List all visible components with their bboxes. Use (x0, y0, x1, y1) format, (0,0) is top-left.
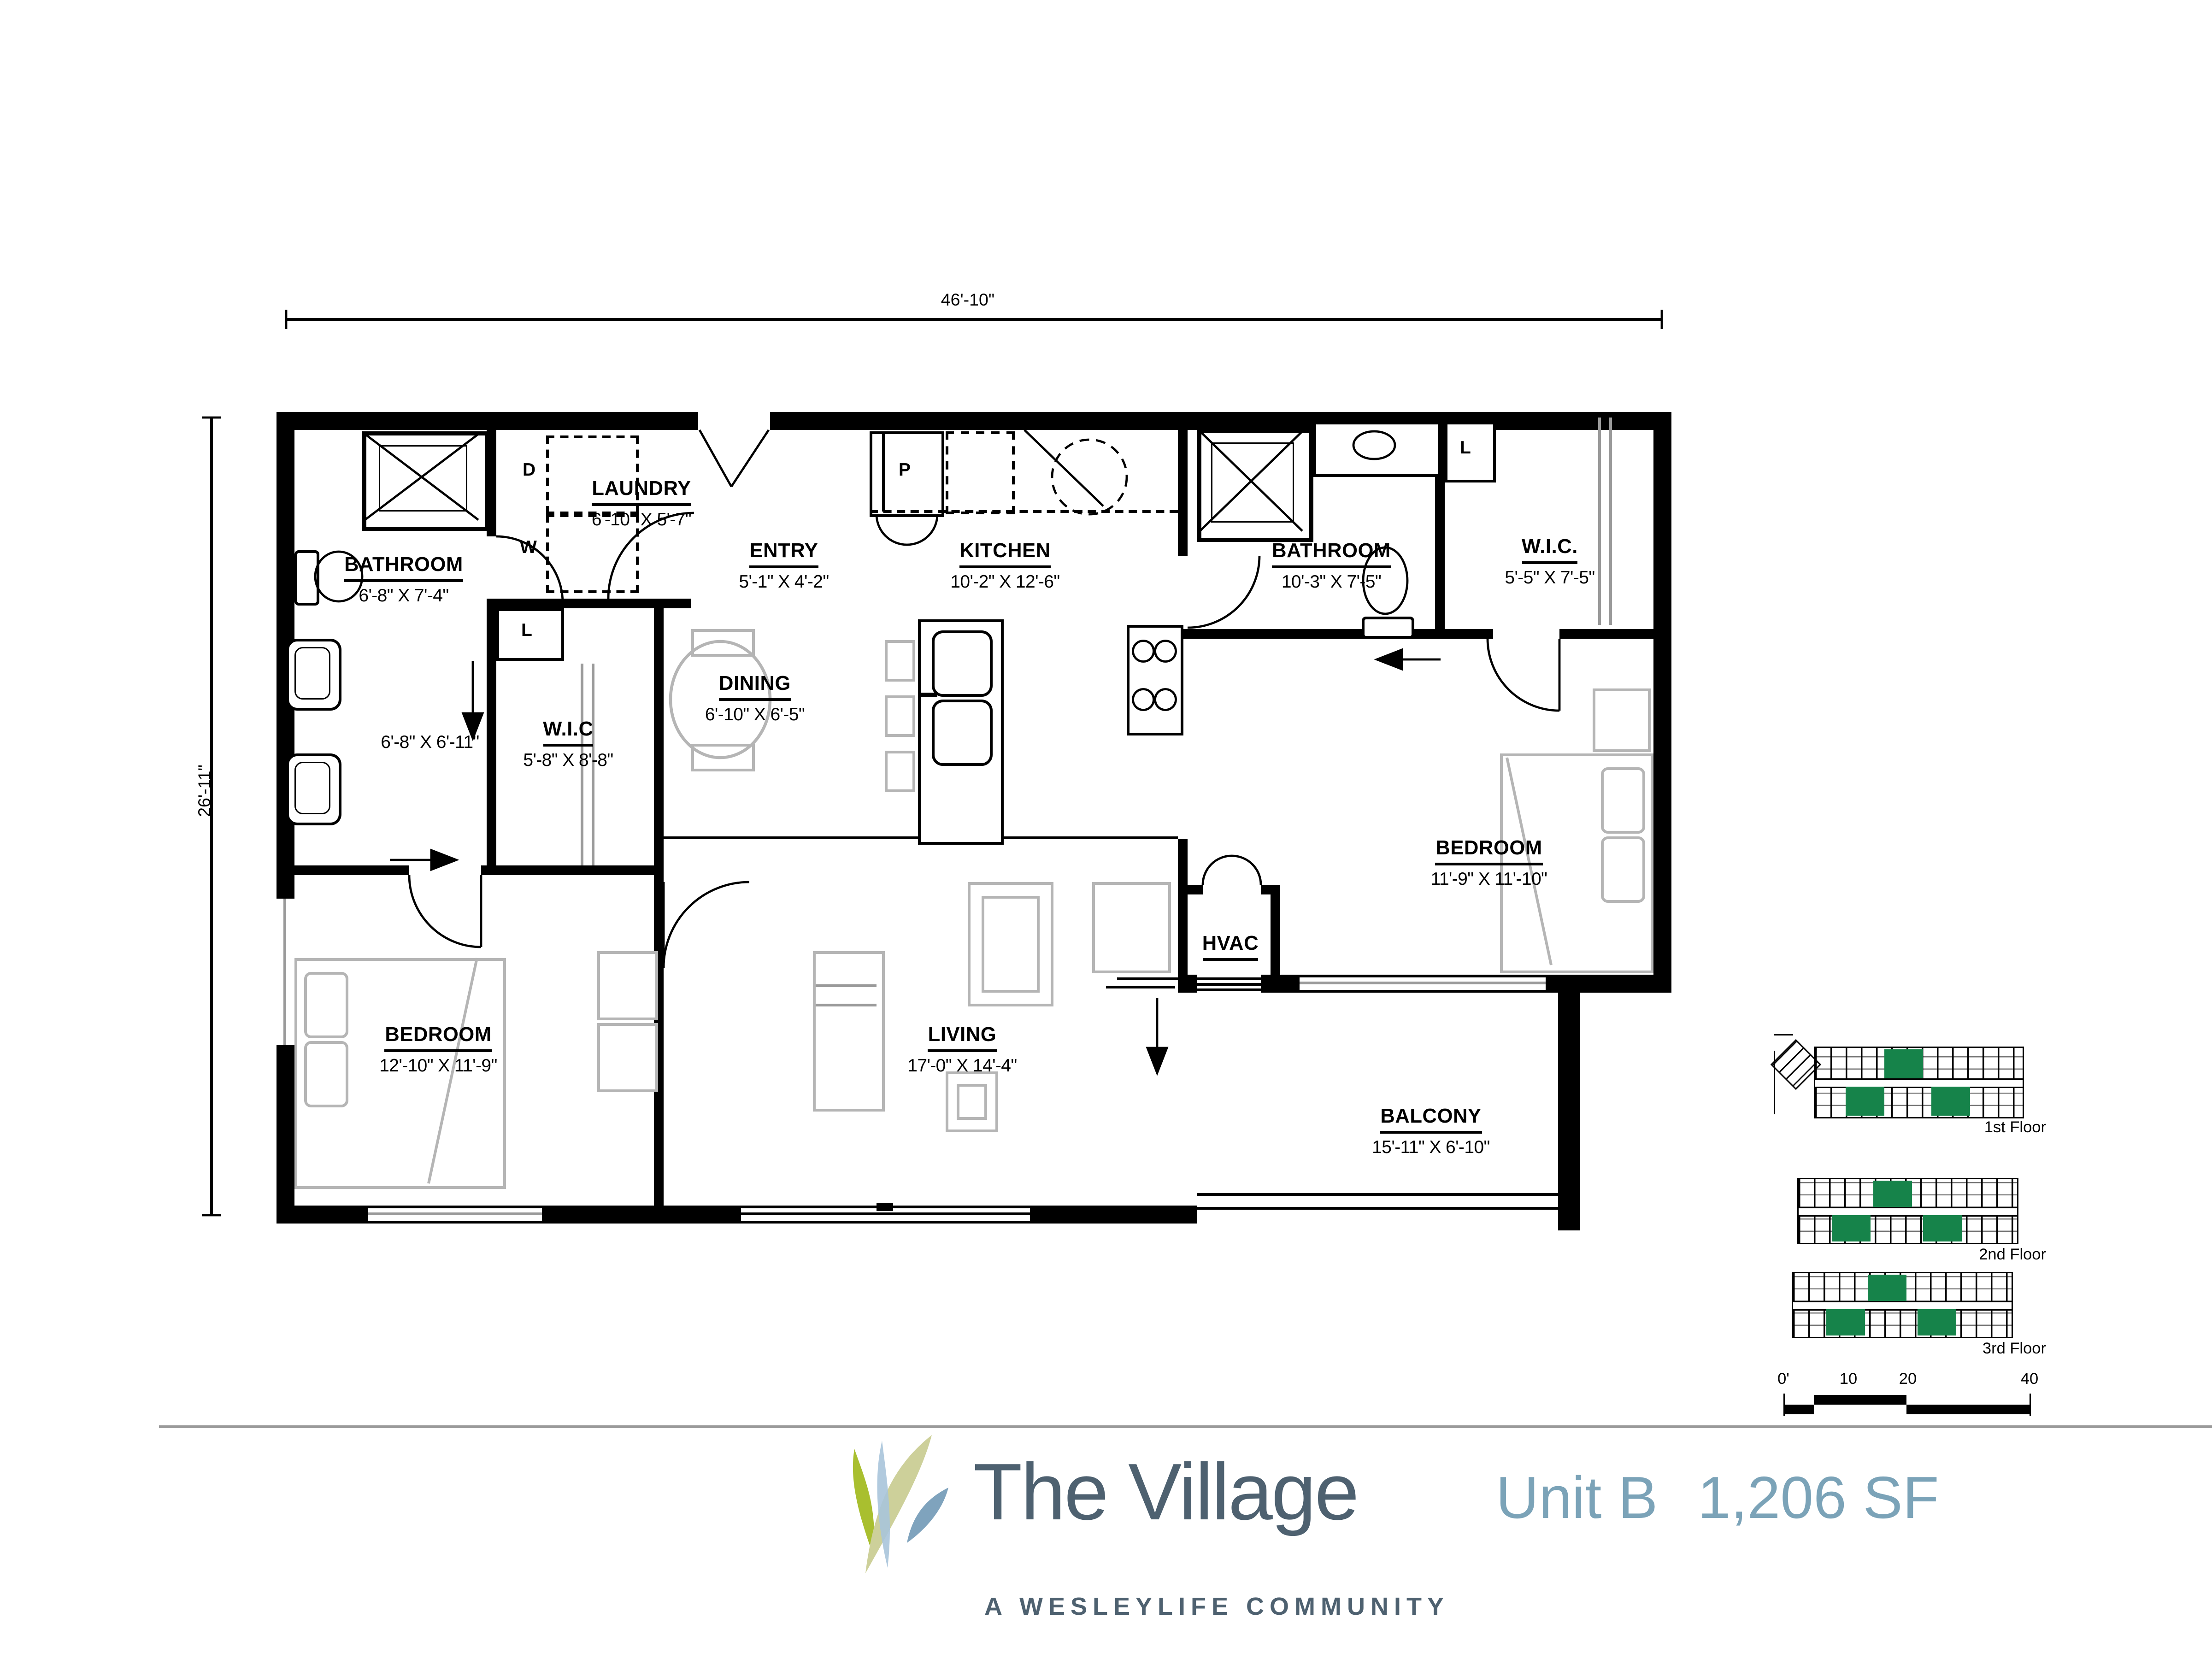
dresser (597, 1023, 658, 1092)
wall-kitchen-bath2 (1178, 412, 1188, 556)
dining-chair (691, 629, 755, 657)
brand-tagline: A WESLEYLIFE COMMUNITY (984, 1593, 1449, 1622)
dim-overall-height: 26'-11" (195, 653, 214, 929)
room-label-laundry: LAUNDRY 6'-10" X 5'-7" (531, 477, 752, 530)
unit-label: Unit B (1496, 1465, 1658, 1533)
entry-door-opening (698, 412, 770, 430)
toilet-2-tank (1362, 617, 1414, 639)
scale-seg-c (1906, 1405, 2030, 1414)
scale-seg-a (1783, 1405, 1814, 1414)
island-faucet (918, 693, 937, 697)
scale-tick-20: 20 (1890, 1371, 1926, 1388)
room-label-kitchen: KITCHEN 10'-2" X 12'-6" (894, 539, 1116, 592)
wall-right (1653, 412, 1671, 993)
wall-bedroom1-top-a (276, 865, 409, 875)
scale-tick-10: 10 (1830, 1371, 1866, 1388)
unit-area: 1,206 SF (1698, 1465, 1939, 1533)
key-plan-3rd-building (1792, 1272, 2013, 1338)
linen-2-label: L (1460, 437, 1471, 458)
wall-bath2-bottom-b (1559, 629, 1671, 639)
room-label-hvac: HVAC (1120, 932, 1341, 961)
logo-grass-icon (846, 1435, 957, 1584)
vanity-2 (1313, 422, 1441, 477)
room-label-living: LIVING 17'-0" X 14'-4" (852, 1023, 1073, 1076)
dim-line-top (286, 318, 1662, 320)
bar-stool (885, 751, 915, 792)
wall-bath2-bottom-a (1178, 629, 1493, 639)
pillow (1601, 767, 1645, 834)
pantry-label: P (899, 459, 911, 480)
room-label-entry: ENTRY 5'-1" X 4'-2" (673, 539, 894, 592)
wall-hvac-top-b (1261, 885, 1280, 894)
washer-label: W (520, 536, 537, 557)
sheet-divider (159, 1425, 2212, 1428)
arrow-left-wic2 (1377, 650, 1441, 669)
key-plan-2nd-label: 2nd Floor (1908, 1247, 2046, 1264)
wall-bedroom1-top-b (481, 865, 664, 875)
range (1127, 625, 1183, 735)
wall-living-bedroom2 (1178, 839, 1188, 993)
key-plan-1st-label: 1st Floor (1908, 1120, 2046, 1136)
refrigerator (946, 431, 1015, 514)
brand-name: The Village (973, 1446, 1358, 1539)
floor-plan-sheet: BATHROOM 6'-8" X 7'-4" LAUNDRY 6'-10" X … (0, 0, 2212, 1659)
scale-tick-0: 0' (1765, 1371, 1801, 1388)
room-label-bedroom-2: BEDROOM 11'-9" X 11'-10" (1378, 836, 1600, 889)
balcony-slider (1117, 977, 1186, 980)
arrow-down-balcony (1147, 998, 1167, 1073)
room-label-wic-1: W.I.C 5'-8" X 8'-8" (458, 718, 679, 771)
room-label-bathroom-2: BATHROOM 10'-3" X 7'-5" (1221, 539, 1442, 592)
island-sink-b (932, 700, 993, 766)
island-sink-a (932, 630, 993, 697)
linen-1-label: L (521, 619, 532, 640)
room-label-bathroom-1: BATHROOM 6'-8" X 7'-4" (293, 553, 514, 606)
bar-stool (885, 695, 915, 737)
room-dims: 6'-8" X 7'-4" (293, 586, 514, 606)
room-name: BATHROOM (344, 556, 463, 582)
dining-chair (691, 744, 755, 771)
nightstand (1593, 688, 1651, 752)
room-label-wic-2: W.I.C. 5'-5" X 7'-5" (1439, 535, 1660, 588)
key-plan-2nd-building (1797, 1178, 2018, 1244)
upper-cabinets (870, 510, 1178, 513)
bar-stool (885, 640, 915, 682)
room-label-bedroom-1: BEDROOM 12'-10" X 11'-9" (328, 1023, 549, 1076)
pillow (1601, 836, 1645, 903)
key-plan-1st-building (1814, 1047, 2024, 1118)
scale-tick-40: 40 (2012, 1371, 2047, 1388)
room-label-balcony: BALCONY 15'-11" X 6'-10" (1320, 1105, 1541, 1158)
wic2-rod (1598, 418, 1600, 625)
scale-seg-b (1814, 1395, 1906, 1405)
wall-hvac-top-a (1188, 885, 1203, 894)
dim-overall-width: 46'-10" (829, 290, 1106, 310)
dryer-label: D (523, 459, 535, 480)
wall-balcony-right (1558, 975, 1580, 1230)
dresser (597, 951, 658, 1020)
key-plan-3rd-label: 3rd Floor (1908, 1341, 2046, 1358)
plan-linework (0, 0, 2212, 1659)
balcony-rail (1197, 1193, 1558, 1210)
room-label-dining: DINING 6'-10" X 6'-5" (644, 672, 865, 725)
